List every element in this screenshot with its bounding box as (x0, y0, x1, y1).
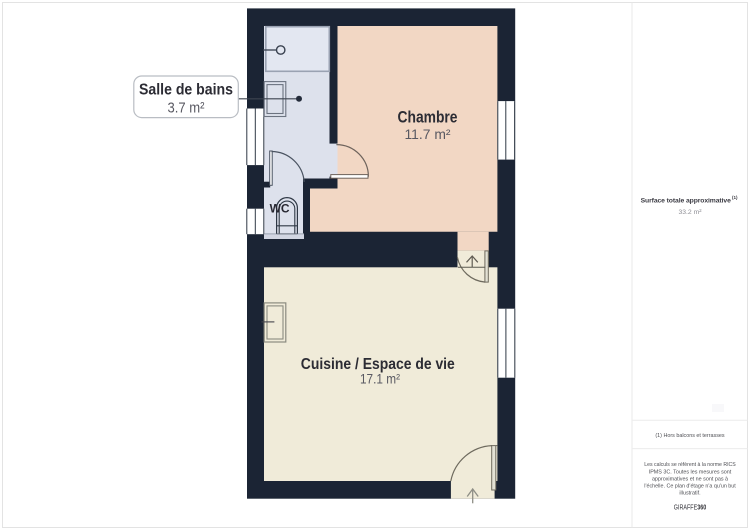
svg-text:3.7 m²: 3.7 m² (168, 100, 205, 117)
svg-text:33.2 m²: 33.2 m² (678, 209, 702, 216)
svg-text:Chambre: Chambre (398, 108, 458, 126)
svg-text:11.7 m²: 11.7 m² (405, 126, 451, 142)
svg-text:(1): (1) (732, 195, 738, 200)
svg-text:17.1 m²: 17.1 m² (360, 371, 400, 387)
svg-text:WC: WC (270, 201, 290, 215)
svg-text:illustratif.: illustratif. (679, 491, 700, 497)
svg-text:Salle de bains: Salle de bains (139, 81, 233, 98)
svg-text:IPMS 3C. Toutes les mesures so: IPMS 3C. Toutes les mesures sont (649, 469, 732, 475)
svg-text:approximatives et ne sont pas: approximatives et ne sont pas à (652, 476, 728, 482)
svg-text:(1) Hors balcons et terrasses: (1) Hors balcons et terrasses (655, 433, 725, 439)
svg-text:l'échelle. Ce plan d'étage n'a: l'échelle. Ce plan d'étage n'a qu'un but (644, 484, 736, 490)
svg-text:Les calculs se réfèrent à la n: Les calculs se réfèrent à la norme RICS (644, 462, 736, 468)
svg-text:GIRAFFE360: GIRAFFE360 (674, 505, 707, 512)
svg-text:Surface totale approximative: Surface totale approximative (641, 197, 731, 204)
